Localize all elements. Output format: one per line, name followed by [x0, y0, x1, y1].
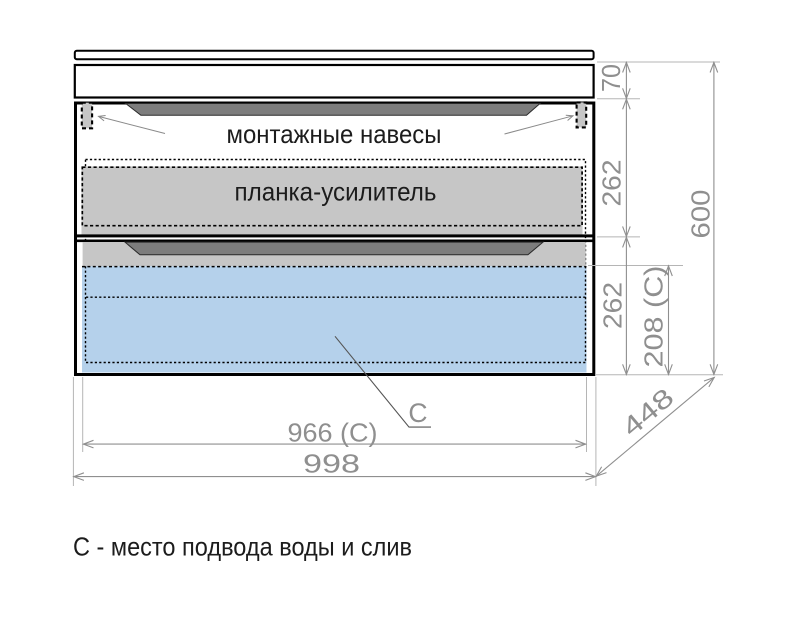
- svg-text:208 (C): 208 (C): [639, 266, 669, 368]
- svg-text:262: 262: [597, 160, 627, 207]
- svg-text:C - место подвода воды и слив: C - место подвода воды и слив: [73, 532, 412, 562]
- svg-text:монтажные навесы: монтажные навесы: [227, 119, 442, 149]
- svg-text:966 (C): 966 (C): [288, 418, 378, 448]
- svg-text:998: 998: [303, 449, 360, 479]
- svg-text:C: C: [408, 398, 427, 428]
- svg-text:600: 600: [686, 190, 716, 239]
- svg-text:262: 262: [598, 282, 628, 329]
- svg-text:планка-усилитель: планка-усилитель: [235, 177, 437, 207]
- svg-text:70: 70: [596, 64, 626, 92]
